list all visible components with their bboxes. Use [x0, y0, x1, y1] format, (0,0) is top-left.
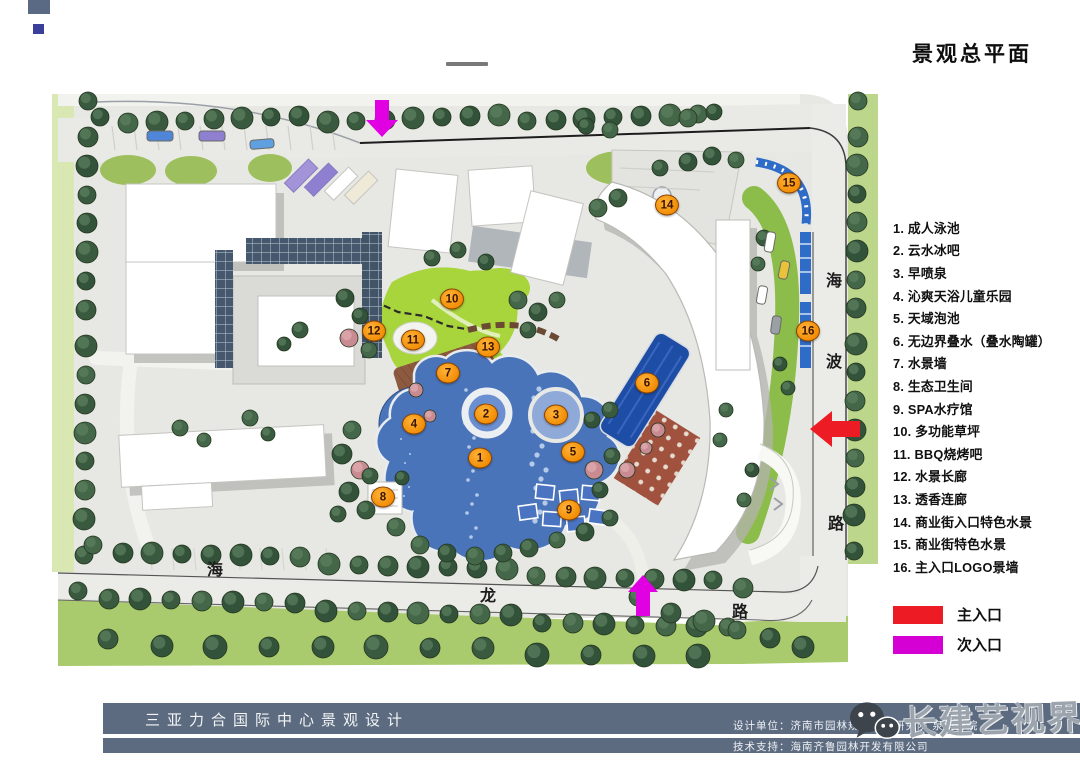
legend-item: 6. 无边界叠水（叠水陶罐）: [893, 329, 1079, 352]
legend-item: 15. 商业街特色水景: [893, 532, 1079, 555]
commercial-tower: [716, 220, 750, 370]
secondary-entrance-label: 次入口: [957, 634, 1002, 655]
legend-item: 16. 主入口LOGO景墙: [893, 555, 1079, 578]
plan-marker-9: 9: [557, 500, 581, 521]
plan-marker-2: 2: [474, 404, 498, 425]
plan-marker-14: 14: [655, 195, 679, 216]
plan-marker-10: 10: [440, 289, 464, 310]
secondary-entrance-swatch: [893, 636, 943, 654]
project-title: 三亚力合国际中心景观设计: [145, 709, 409, 730]
plan-marker-1: 1: [468, 448, 492, 469]
plan-marker-6: 6: [635, 373, 659, 394]
road-label-haibo-2: 波: [826, 348, 842, 372]
road-haibo: [812, 104, 846, 576]
legend-item: 10. 多功能草坪: [893, 419, 1079, 442]
plan-marker-11: 11: [401, 330, 425, 351]
legend-item: 14. 商业街入口特色水景: [893, 510, 1079, 533]
road-label-haibo-1: 海: [826, 267, 842, 291]
plan-marker-8: 8: [371, 487, 395, 508]
hotel-building-b: [126, 262, 218, 354]
legend-secondary-entrance: 次入口: [893, 634, 1002, 655]
tower-1: [388, 169, 458, 253]
legend-item: 3. 早喷泉: [893, 261, 1079, 284]
road-label-hailong-3: 路: [732, 598, 748, 622]
main-entrance-swatch: [893, 606, 943, 624]
plan-marker-3: 3: [544, 405, 568, 426]
watermark-text: 长建艺视界: [902, 690, 1080, 745]
plan-marker-7: 7: [436, 363, 460, 384]
watermark: 长建艺视界: [844, 690, 1080, 747]
sheet: 景观总平面: [0, 0, 1080, 764]
legend-list: 1. 成人泳池2. 云水冰吧3. 早喷泉4. 沁爽天浴儿童乐园5. 天域泡池6.…: [893, 216, 1079, 578]
legend-item: 13. 透香连廊: [893, 487, 1079, 510]
main-entrance-label: 主入口: [957, 604, 1002, 625]
legend-item: 11. BBQ烧烤吧: [893, 442, 1079, 465]
water-feature-16a: [800, 232, 811, 294]
grass-bottom-right: [740, 616, 848, 664]
legend-main-entrance: 主入口: [893, 604, 1002, 625]
legend-item: 7. 水景墙: [893, 352, 1079, 375]
plan-marker-13: 13: [476, 337, 500, 358]
road-label-hailong-2: 龙: [480, 582, 496, 606]
legend-item: 8. 生态卫生间: [893, 374, 1079, 397]
plan-marker-16: 16: [796, 321, 820, 342]
plan-marker-12: 12: [362, 321, 386, 342]
road-label-haibo-3: 路: [828, 510, 844, 534]
wechat-icon: [844, 697, 904, 747]
legend-item: 4. 沁爽天浴儿童乐园: [893, 284, 1079, 307]
legend-item: 1. 成人泳池: [893, 216, 1079, 239]
legend-item: 12. 水景长廊: [893, 465, 1079, 488]
road-label-hailong-1: 海: [207, 556, 223, 580]
legend-item: 2. 云水冰吧: [893, 239, 1079, 262]
plan-marker-15: 15: [777, 173, 801, 194]
grass-left-edge: [52, 94, 74, 572]
legend-item: 5. 天域泡池: [893, 306, 1079, 329]
plan-marker-4: 4: [402, 414, 426, 435]
legend-item: 9. SPA水疗馆: [893, 397, 1079, 420]
plan-marker-5: 5: [561, 442, 585, 463]
